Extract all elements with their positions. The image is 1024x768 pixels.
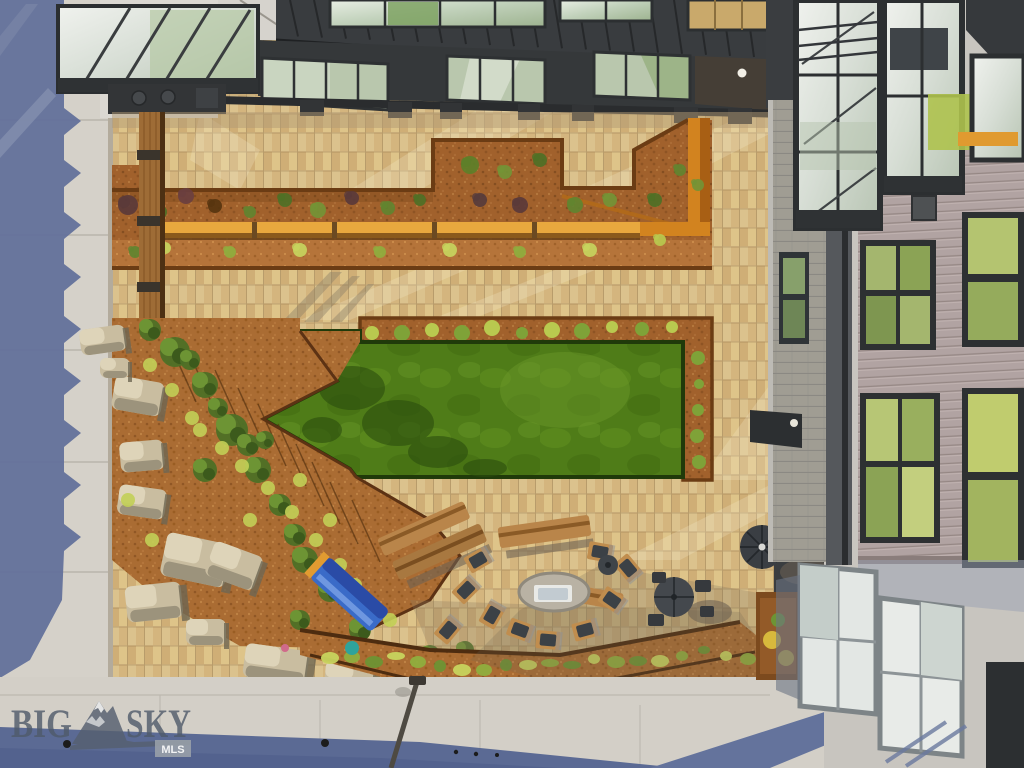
svg-text:BIG: BIG xyxy=(11,701,72,746)
svg-text:MLS: MLS xyxy=(161,744,184,756)
svg-text:SKY: SKY xyxy=(126,701,191,746)
